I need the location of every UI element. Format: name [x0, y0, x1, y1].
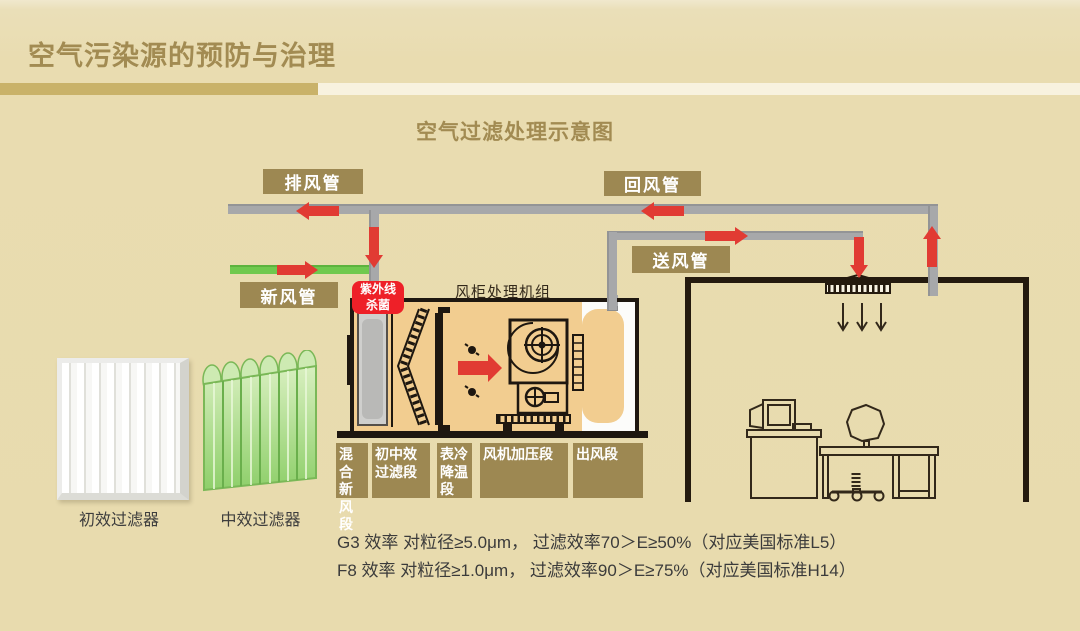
- fresh-air-flow-arrow-icon: [277, 261, 318, 279]
- primary-filter-caption: 初效过滤器: [55, 506, 183, 530]
- ahu-section-filter: 初中效 过滤段: [372, 443, 430, 498]
- title-underline-bar: [0, 83, 1080, 95]
- ahu-section-outlet: 出风段: [573, 443, 643, 498]
- uv-sterilization-badge: 紫外线 杀菌: [352, 281, 404, 314]
- room-return-up-flow-arrow-icon: [923, 226, 941, 267]
- efficiency-note-g3: G3 效率 对粒径≥5.0μm， 过滤效率70＞E≥50%（对应美国标准L5）: [337, 529, 856, 557]
- supply-duct-label: 送风管: [632, 246, 730, 273]
- air-handling-unit-drawing: [335, 293, 650, 440]
- slide: 空气污染源的预防与治理 空气过滤处理示意图: [0, 0, 1080, 631]
- supply-flow-arrow-icon: [705, 227, 748, 245]
- ahu-title: 风柜处理机组: [455, 281, 551, 302]
- ahu-section-mixing: 混合 新风 段: [336, 443, 368, 498]
- ahu-fan: [508, 320, 567, 383]
- title-underline-cream-segment: [318, 83, 1080, 95]
- office-desk-computer-drawing: [747, 400, 938, 501]
- ahu-motor: [518, 383, 567, 413]
- fresh-duct-label: 新风管: [240, 282, 338, 308]
- room-airflow-arrows-icon: [838, 303, 886, 330]
- medium-filter-caption: 中效过滤器: [198, 506, 323, 530]
- ahu-section-fan: 风机加压段: [480, 443, 568, 498]
- room-walls: [688, 280, 1026, 502]
- title-underline-gold-segment: [0, 83, 318, 95]
- efficiency-note-f8: F8 效率 对粒径≥1.0μm， 过滤效率90＞E≥75%（对应美国标准H14）: [337, 557, 856, 585]
- exhaust-flow-arrow-icon: [296, 202, 339, 220]
- exhaust-duct-label: 排风管: [263, 169, 363, 194]
- return-flow-arrow-icon: [641, 202, 684, 220]
- mixing-down-flow-arrow-icon: [365, 227, 383, 268]
- primary-filter-image: [57, 358, 189, 500]
- medium-bag-filter-image: [198, 350, 323, 500]
- supply-riser-pipe: [607, 232, 617, 310]
- diagram-title: 空气过滤处理示意图: [385, 116, 645, 146]
- diffuser-down-flow-arrow-icon: [850, 237, 868, 278]
- return-duct-label: 回风管: [604, 171, 701, 196]
- page-title: 空气污染源的预防与治理: [28, 34, 336, 73]
- efficiency-notes: G3 效率 对粒径≥5.0μm， 过滤效率70＞E≥50%（对应美国标准L5） …: [337, 529, 856, 585]
- ahu-section-cooling: 表冷 降温 段: [437, 443, 472, 498]
- clean-room-drawing: [680, 270, 1035, 505]
